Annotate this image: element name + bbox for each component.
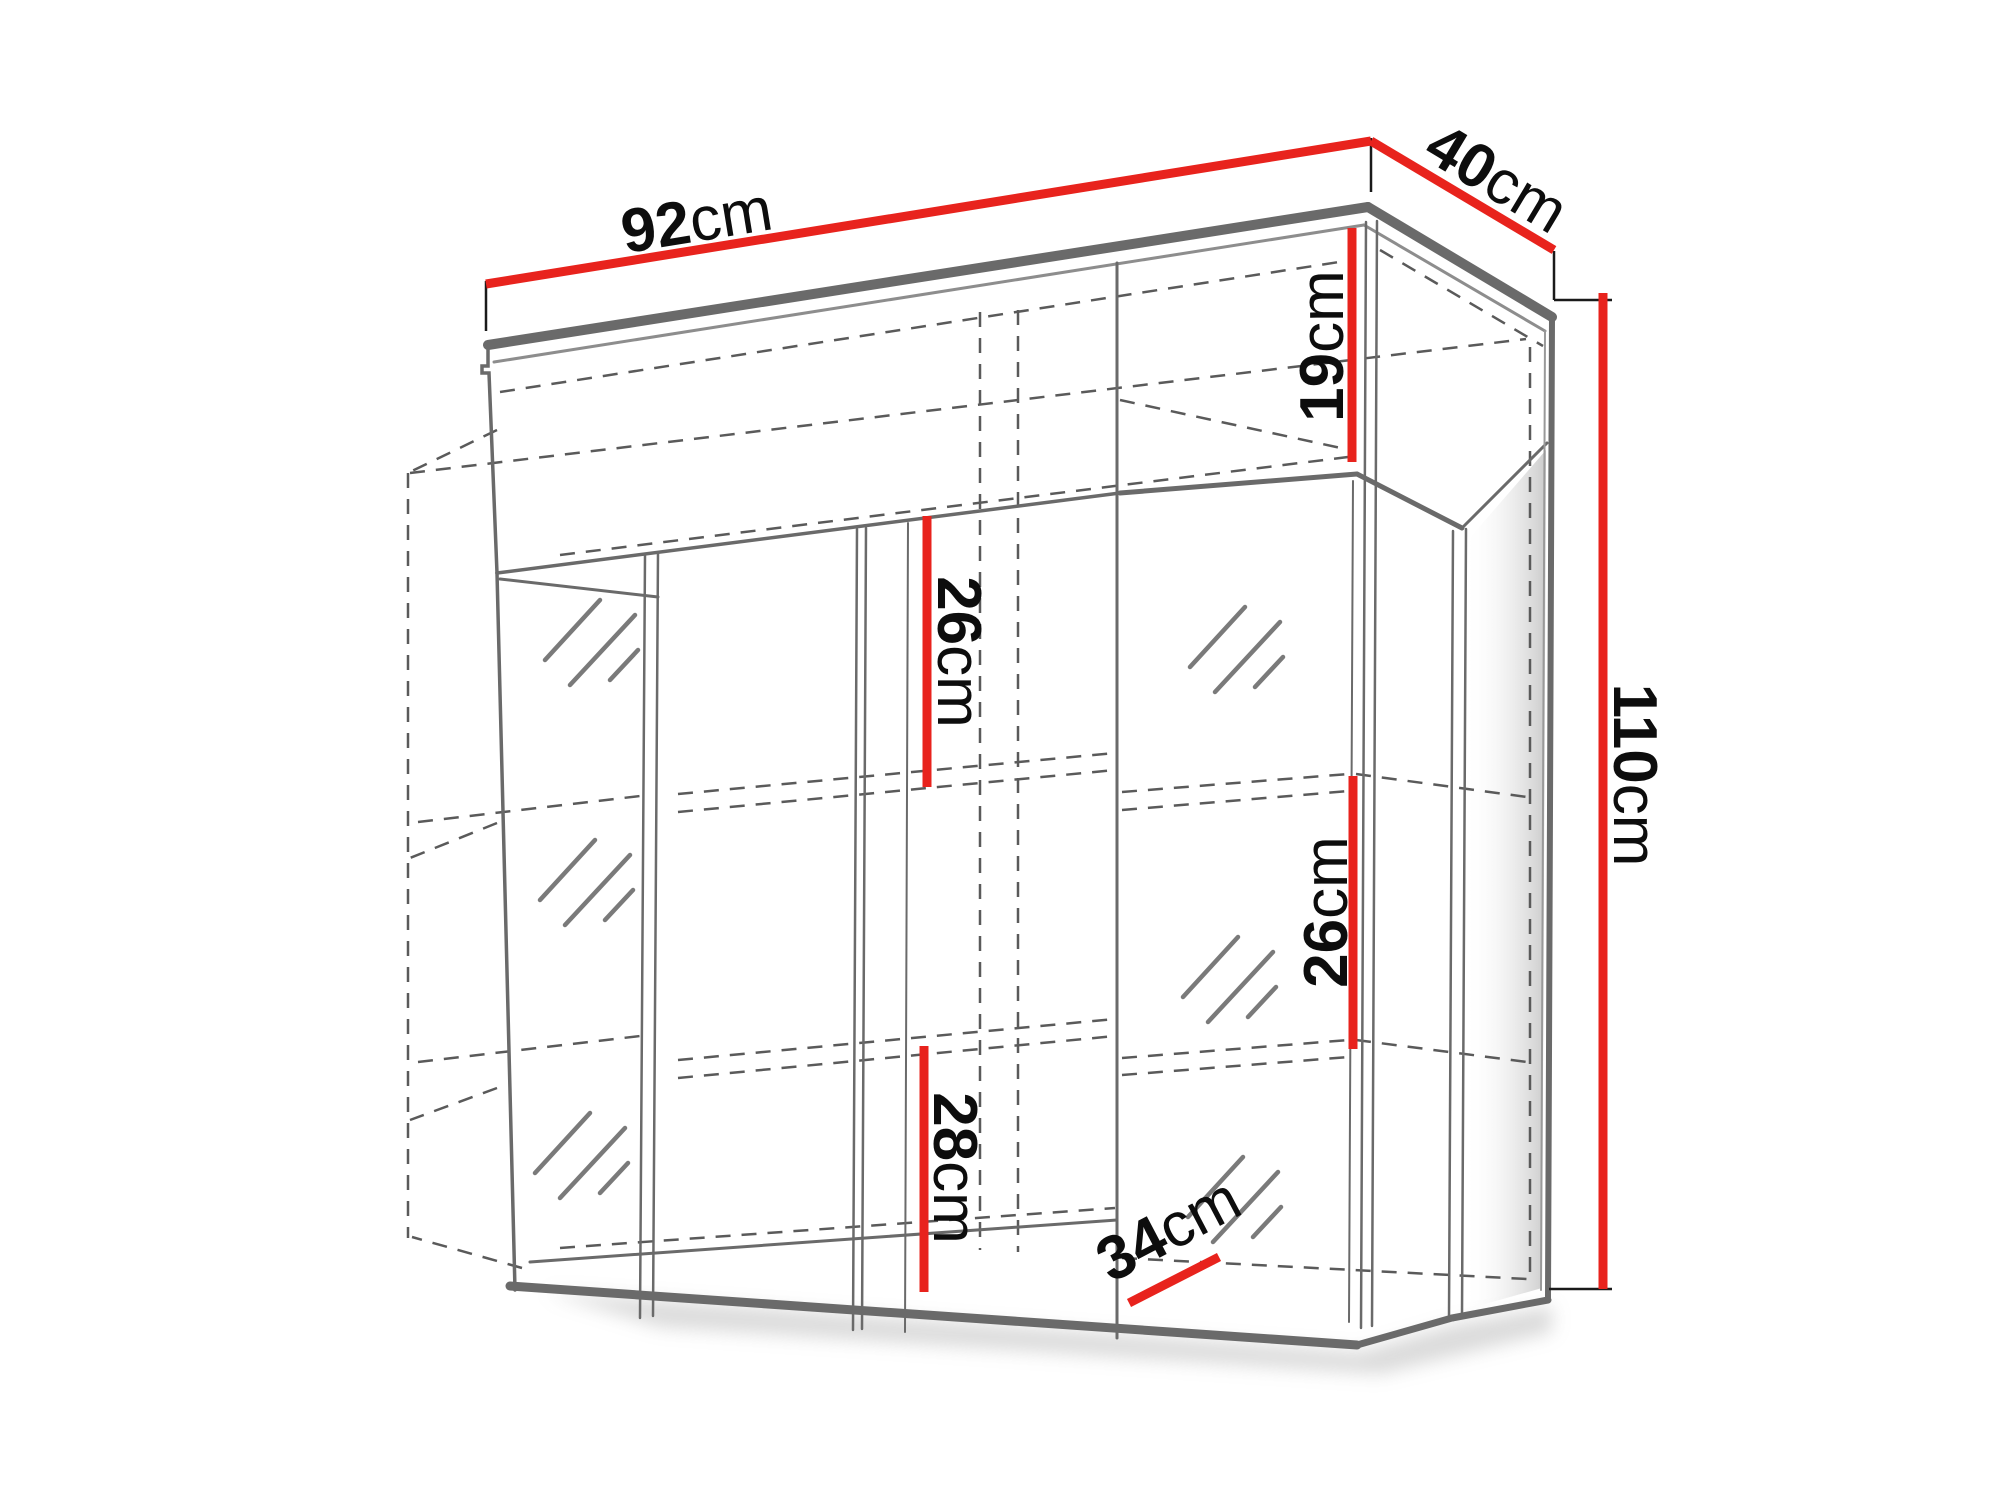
left-door-glass-upper — [545, 600, 638, 685]
left-edge-lower — [497, 573, 515, 1290]
height-dimension-label: 110cm — [1600, 684, 1669, 867]
diagram-canvas: 92cm 40cm 110cm 19cm 26cm 26cm 28cm 34cm — [0, 0, 2000, 1500]
glass-hatch-marks — [535, 600, 1283, 1242]
right-door-glass-upper — [1190, 607, 1283, 692]
left-door-glass-middle — [540, 840, 633, 925]
right-box-top-edge — [1120, 474, 1357, 493]
upper-middle-dimension-label: 26cm — [924, 576, 993, 728]
floor-front-edge — [530, 1220, 1117, 1262]
left-door-right-edge — [640, 555, 645, 1318]
interior-depth-dimension-label: 34cm — [1085, 1164, 1251, 1296]
left-edge — [482, 345, 497, 573]
depth-dimension-label: 40cm — [1414, 110, 1580, 247]
top-compartment-dimension-label: 19cm — [1288, 270, 1357, 422]
right-face-shading — [1464, 450, 1546, 1310]
width-dimension-label: 92cm — [616, 174, 777, 267]
shelf-band-bottom-edge — [497, 493, 1120, 573]
right-compartment-dimension-label: 26cm — [1292, 836, 1361, 988]
right-door-glass-middle — [1183, 937, 1276, 1022]
back-right-edge — [1548, 317, 1552, 1298]
lower-middle-dimension-label: 28cm — [920, 1092, 989, 1244]
left-door-glass-lower — [535, 1113, 628, 1198]
top-front-edge — [488, 207, 1368, 345]
cabinet-dimension-diagram: 92cm 40cm 110cm 19cm 26cm 26cm 28cm 34cm — [0, 0, 2000, 1500]
